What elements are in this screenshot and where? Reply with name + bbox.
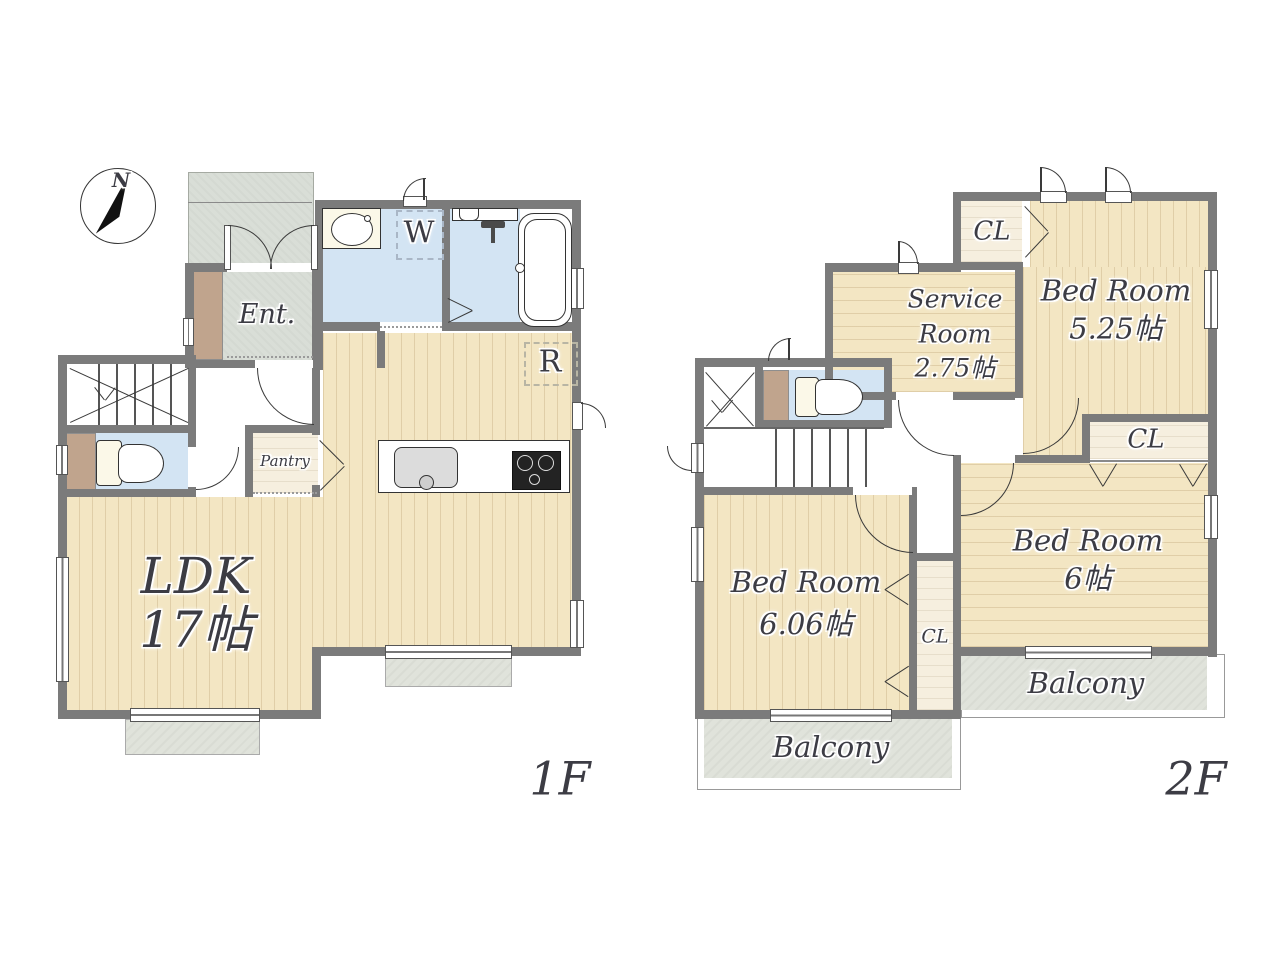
ldk-floor-connector [312,497,323,649]
stair-tread [865,429,867,487]
wall [185,263,227,272]
closet-mid-label: CL [921,627,948,648]
window [56,557,69,682]
bedroom-606-label: Bed Room 6.06帖 [731,561,882,645]
shoe-cabinet [193,270,223,360]
compass-north-label: N [112,169,130,191]
door-opening [961,455,1015,463]
window [130,708,260,722]
stair-tread [811,429,813,487]
door-opening [896,392,953,400]
wall [312,647,321,719]
door-leaf [1040,167,1042,192]
wall [825,263,961,272]
bathtub-inner [524,219,566,321]
stair-tread [116,364,118,425]
door-leaf [1105,167,1107,192]
toilet-bowl [815,379,863,415]
wall [245,425,253,497]
wall [917,553,953,561]
closet-top-label: CL [973,218,1010,247]
stair-tread [134,364,136,425]
window [385,645,512,659]
terrace [125,719,260,755]
wall [58,425,196,433]
stair-tread [152,364,154,425]
window [691,443,704,473]
ldk-size: 17帖 [139,603,253,657]
door-opening [853,487,912,495]
window [183,318,194,346]
washbasin-faucet [364,215,371,222]
ldk-name: LDK [139,549,253,603]
shower-fixture [481,221,505,228]
window [1204,495,1218,539]
wall [755,362,763,428]
bedroom-525-label: Bed Room 5.25帖 [1041,272,1192,347]
window [1025,646,1152,659]
stair-arrow [711,400,722,413]
stove-burner [538,455,554,471]
window [570,600,584,648]
ldk-label: LDK 17帖 [139,549,253,657]
service-room-line3: 2.75帖 [908,351,1003,386]
bath-mini-sink [459,208,479,221]
door-swing-arc [257,368,314,425]
pantry-label: Pantry [260,453,310,470]
bedroom-6-size: 6帖 [1013,560,1164,598]
door-leaf [898,241,900,263]
floor2-title: 2F [1165,754,1226,805]
door-leaf [788,338,790,360]
wall [188,355,196,433]
door-opening [1015,398,1023,455]
service-room-label: Service Room 2.75帖 [908,282,1003,386]
kitchen-faucet [419,475,434,490]
bedroom-6-label: Bed Room 6帖 [1013,522,1164,597]
bedroom-525-floor [1030,201,1208,267]
threshold-dotted-line [227,356,313,358]
wall [245,425,320,433]
door-leaf [423,178,425,200]
door-swing-arc [1105,167,1131,193]
floor1-title: 1F [529,754,590,805]
door-swing-arc [1040,167,1066,193]
wall [695,358,892,367]
bathtub-knob [515,263,525,273]
fridge-label: R [539,346,562,379]
wall [953,192,1216,201]
bedroom-525-name: Bed Room [1041,272,1192,310]
wall [58,489,196,497]
stair-tread [793,429,795,487]
window [770,709,892,722]
closet-right-label: CL [1127,426,1164,455]
wall [909,710,961,719]
threshold-dotted-line [253,492,317,494]
floorplan-canvas: N [0,0,1280,960]
stair-tread [847,429,849,487]
window [570,268,584,309]
window [1204,270,1218,329]
window [56,445,68,475]
wall [1015,455,1090,463]
toilet1-cabinet [66,433,96,491]
shower-fixture [491,228,495,243]
toilet-bowl [118,444,164,483]
door-swing-arc [581,403,606,428]
bedroom-525-size: 5.25帖 [1041,310,1192,348]
wall [953,192,961,270]
wall [377,330,385,368]
stair-arrow [94,387,105,400]
toilet2-cabinet [763,370,789,422]
balcony-left-label: Balcony [773,732,890,764]
bedroom-6-name: Bed Room [1013,522,1164,560]
service-room-line1: Service [908,282,1003,317]
washer-label: W [404,217,435,250]
stove-burner [529,474,540,485]
threshold-dotted-line [380,326,442,328]
wall [312,485,320,497]
stair-tread [775,429,777,487]
closet-divider-line [1090,460,1208,462]
terrace [385,657,512,687]
door-swing-arc [196,447,239,490]
bedroom-606-name: Bed Room [731,561,882,603]
door-swing-arc [898,241,918,264]
wall [1082,414,1216,422]
bedroom-606-size: 6.06帖 [731,603,882,645]
wall [953,455,961,718]
balcony-right-label: Balcony [1028,668,1145,700]
door-opening [255,360,313,368]
door-swing-arc [667,446,692,471]
door-swing-arc [898,400,954,456]
stove-burner [517,455,533,471]
stair-arrow [105,387,116,400]
entrance-label: Ent. [239,300,296,330]
wall [185,263,194,363]
wall [58,355,196,364]
wall [953,262,1023,270]
door-opening [188,447,196,487]
porch-step-line [188,202,312,203]
stair-tread [829,429,831,487]
service-room-line2: Room [908,317,1003,352]
window [691,527,704,582]
